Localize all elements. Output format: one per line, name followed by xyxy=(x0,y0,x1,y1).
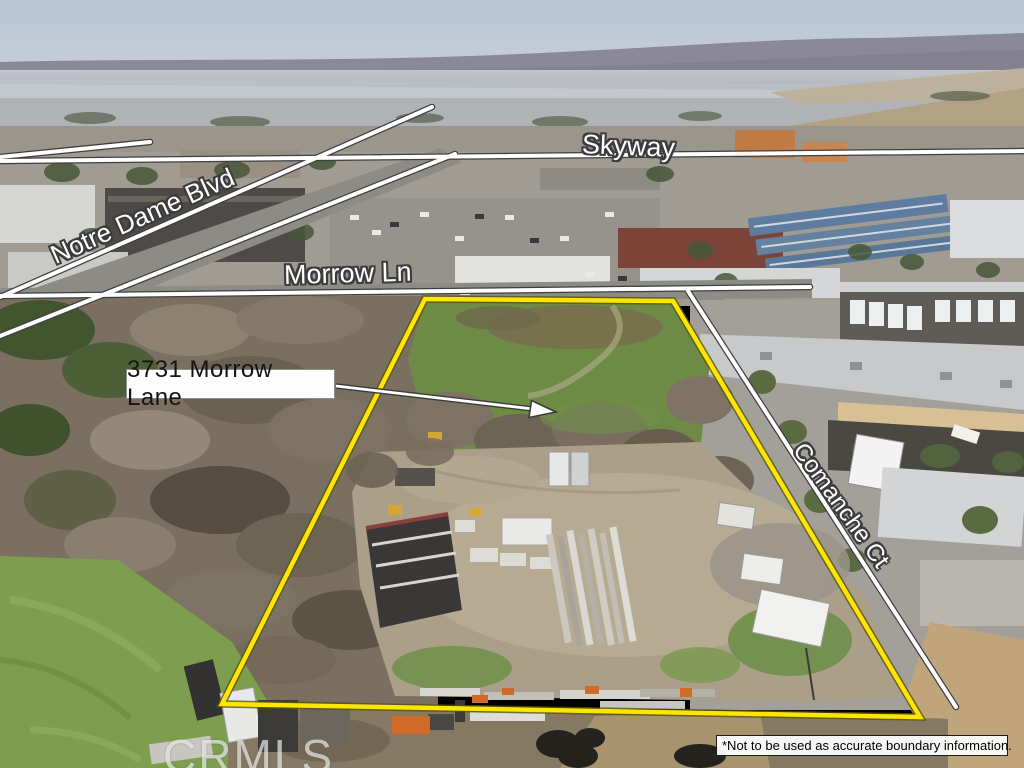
street-label-skyway: Skyway xyxy=(581,131,675,162)
crmls-watermark: CRMLS xyxy=(163,729,334,768)
street-line-skyway xyxy=(0,151,1024,161)
street-line-upper-left xyxy=(0,142,150,157)
boundary-disclaimer: *Not to be used as accurate boundary inf… xyxy=(716,735,1008,756)
street-label-morrow-ln: Morrow Ln xyxy=(284,259,412,289)
aerial-photo-stage: Skyway Notre Dame Blvd Morrow Ln Comanch… xyxy=(0,0,1024,768)
address-callout-text: 3731 Morrow Lane xyxy=(127,356,334,412)
address-callout: 3731 Morrow Lane xyxy=(126,369,335,399)
